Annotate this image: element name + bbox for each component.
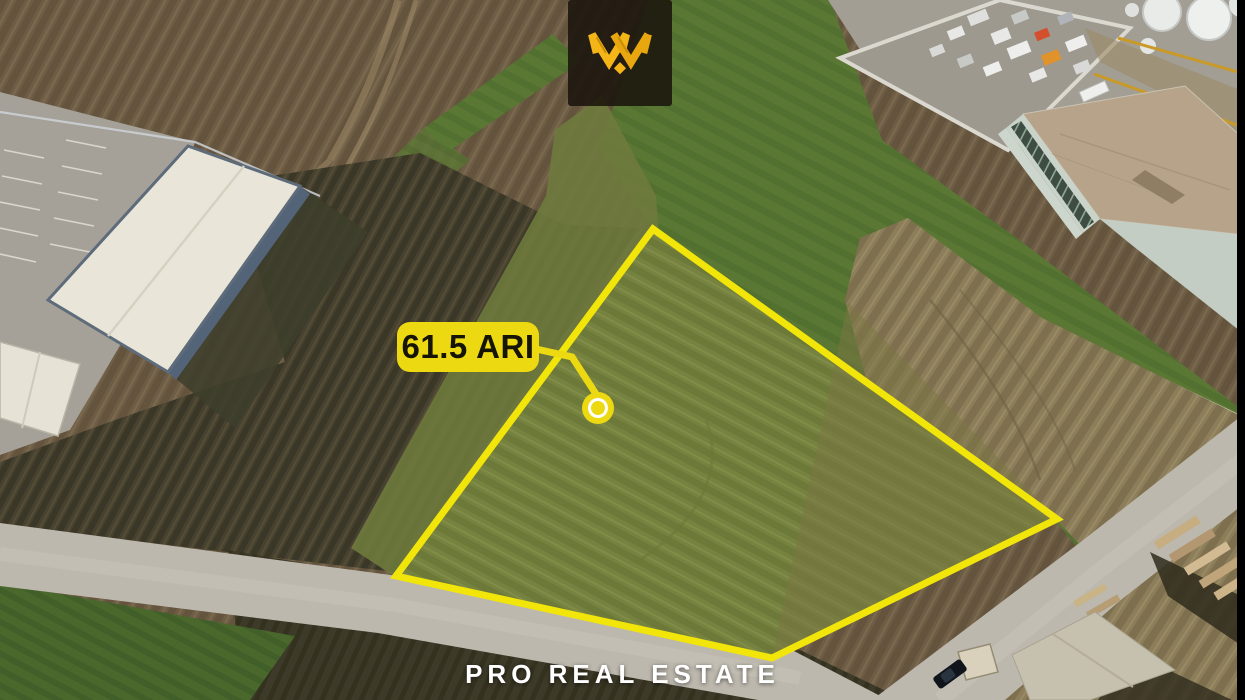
edge-bar <box>1237 0 1245 700</box>
brand-logo <box>568 0 672 106</box>
real-estate-aerial-image: 61.5 ARI PRO REAL ESTATE <box>0 0 1245 700</box>
area-label-text: 61.5 ARI <box>401 328 534 366</box>
logo-emblem-icon <box>581 14 659 92</box>
brand-name: PRO REAL ESTATE <box>0 659 1245 690</box>
area-callout-label: 61.5 ARI <box>397 322 539 372</box>
logo-diamond <box>614 62 626 74</box>
